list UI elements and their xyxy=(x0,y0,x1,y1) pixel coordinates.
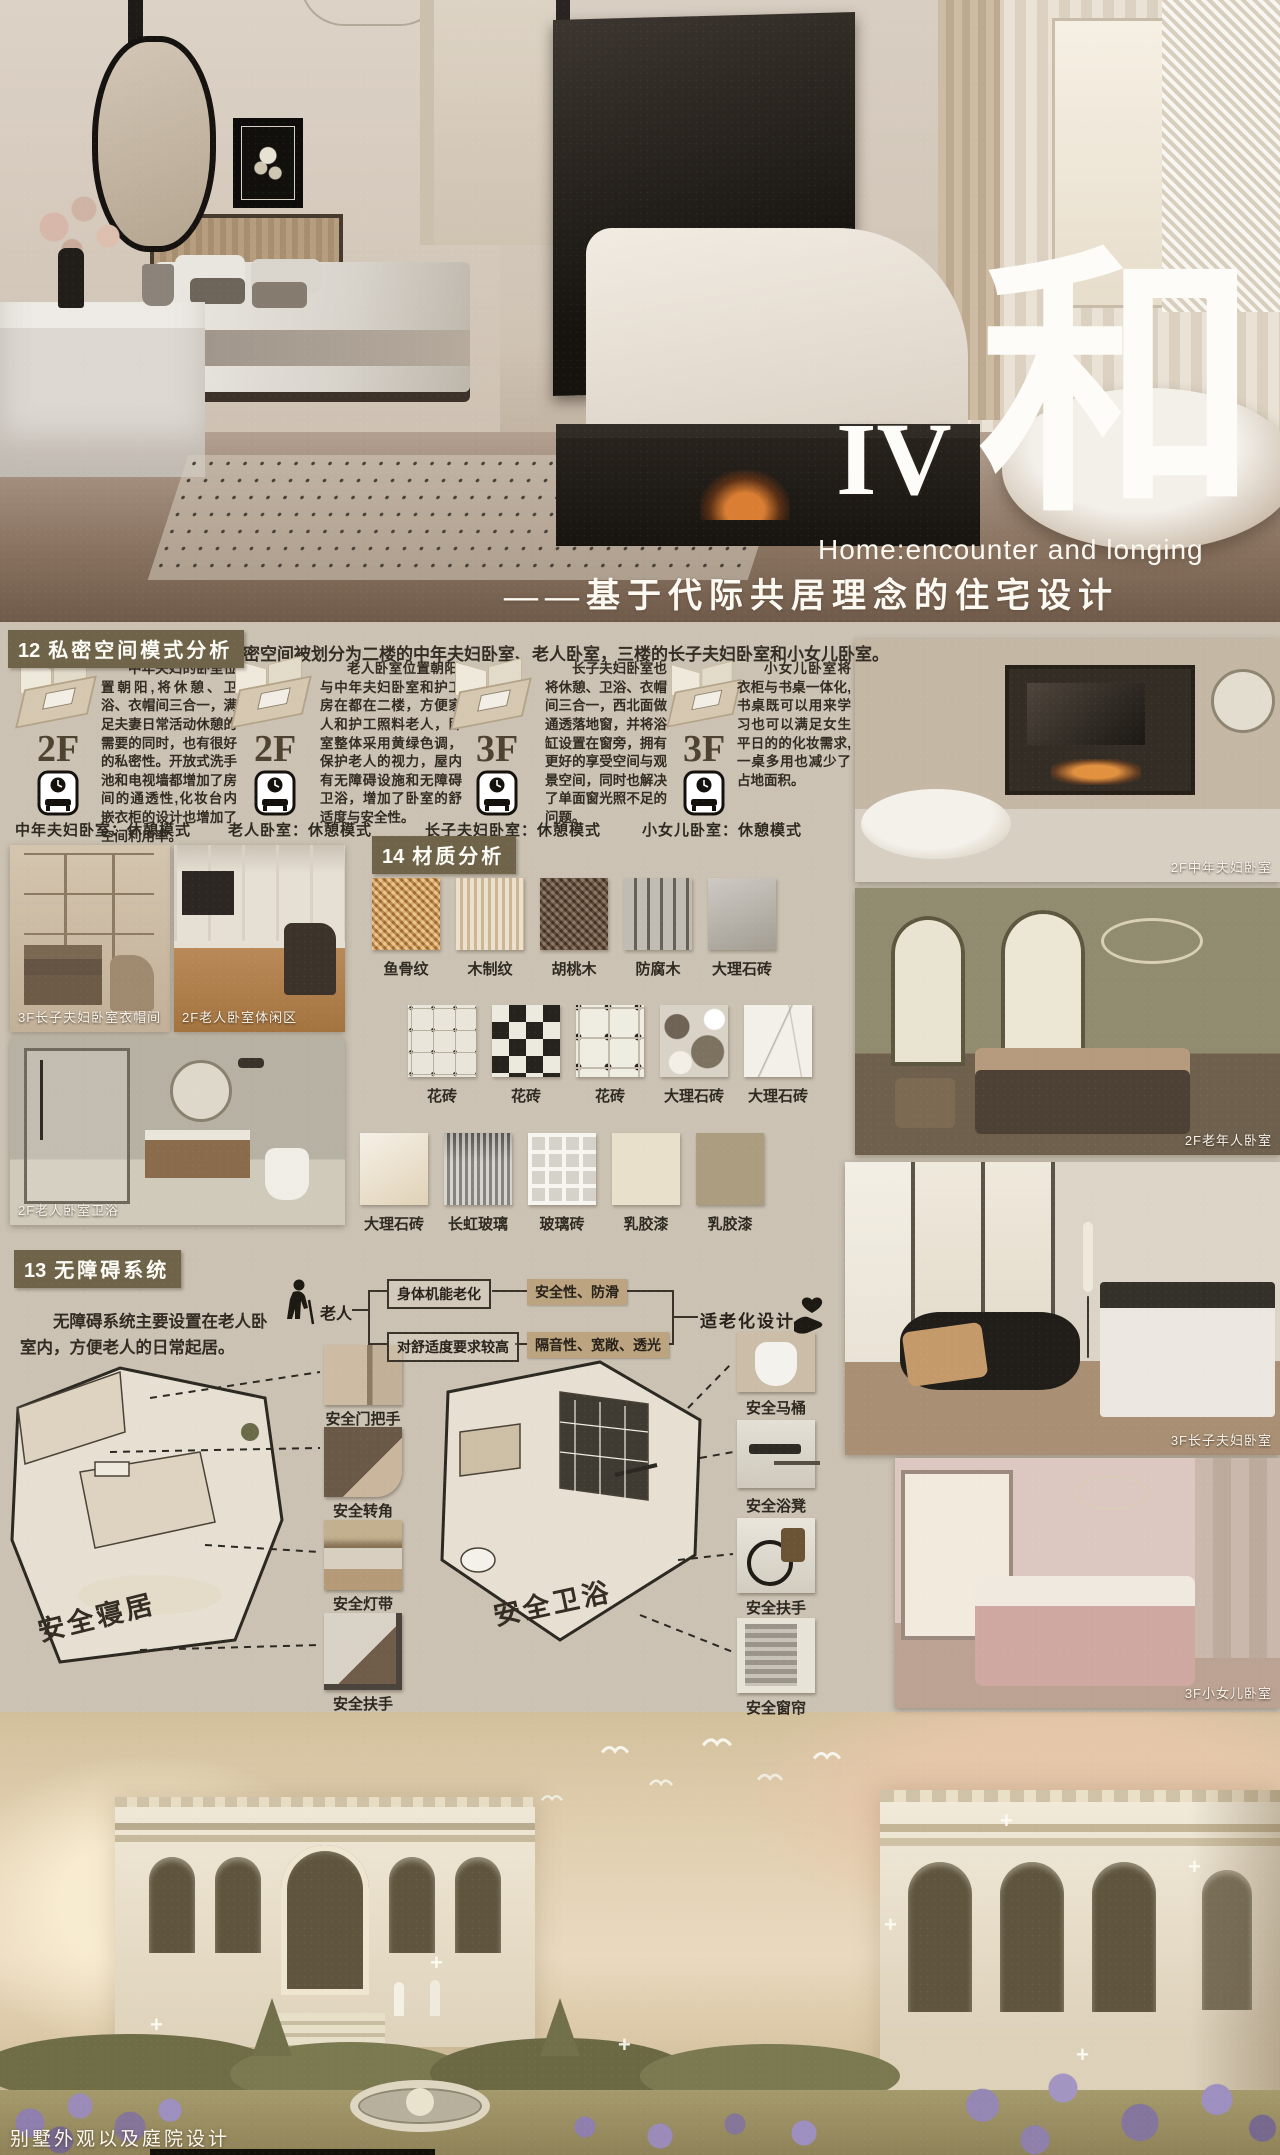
hero-photo: IV 和 Home:encounter and longing ——基于代际共居… xyxy=(0,0,1280,622)
material-row-3: 大理石砖 长虹玻璃 玻璃砖 乳胶漆 乳胶漆 xyxy=(360,1133,764,1234)
parapet xyxy=(115,1797,535,1807)
material-label: 花砖 xyxy=(492,1085,560,1106)
thumb-shower-seat xyxy=(737,1420,815,1488)
counter-pot xyxy=(142,264,174,306)
section13-title: 无障碍系统 xyxy=(54,1260,169,1282)
material-label: 大理石砖 xyxy=(708,958,776,979)
bedroom-mode-column: 2F 中年夫妇的卧室位置朝阳,将休憩、卫浴、衣帽间三合一，满足夫妻日常活动休憩的… xyxy=(15,658,237,820)
material-swatch-herringbone xyxy=(372,878,440,950)
white-figure xyxy=(430,1980,440,2016)
material-label: 防腐木 xyxy=(624,958,692,979)
column-text: 小女儿卧室将衣柜与书桌一体化,书桌既可以用来学习也可以满足女生平日的的化妆需求,… xyxy=(737,660,851,790)
section12-title: 私密空间模式分析 xyxy=(48,640,232,662)
bird-icon xyxy=(812,1748,842,1762)
floorplan-icon xyxy=(454,660,530,728)
mode-label: 小女儿卧室：休憩模式 xyxy=(642,819,802,840)
column-text: 长子夫妇卧室也将休憩、卫浴、衣帽间三合一，西北面做通透落地窗，并将浴缸设置在窗旁… xyxy=(545,660,667,828)
topiary-cone xyxy=(540,1998,580,2056)
clock-bed-icon xyxy=(683,770,725,816)
chair-back xyxy=(781,1528,805,1562)
material-label: 大理石砖 xyxy=(660,1085,728,1106)
thumb-bed-rail xyxy=(324,1613,402,1690)
material-swatch-tile-dots xyxy=(408,1005,476,1077)
left-villa xyxy=(115,1797,535,2047)
arched-window xyxy=(1001,910,1085,1070)
material-row-1: 鱼骨纹 木制纹 胡桃木 防腐木 大理石砖 xyxy=(372,878,776,979)
tv-screen xyxy=(1027,683,1145,745)
material-swatch-glass-brick xyxy=(528,1133,596,1205)
tub-white xyxy=(861,789,1011,859)
material-swatch-cream-marble xyxy=(360,1133,428,1205)
floorplan-icon xyxy=(19,658,95,726)
material-swatch-walnut xyxy=(540,878,608,950)
bed-pink xyxy=(975,1576,1195,1686)
material-label: 乳胶漆 xyxy=(612,1213,680,1234)
mode-label: 中年夫妇卧室：休憩模式 xyxy=(15,819,191,840)
material-label: 木制纹 xyxy=(456,958,524,979)
thumb-bed-lightstrip xyxy=(324,1520,402,1590)
material-label: 大理石砖 xyxy=(360,1213,428,1234)
photo-caption: 3F小女儿卧室 xyxy=(1185,1683,1272,1702)
seat-shape xyxy=(749,1444,801,1454)
design-poster: IV 和 Home:encounter and longing ——基于代际共居… xyxy=(0,0,1280,2155)
cornice xyxy=(115,1823,535,1830)
safety-item-label: 安全转角 xyxy=(303,1500,423,1521)
bird-icon xyxy=(600,1742,630,1756)
material-swatch-cream-paint xyxy=(612,1133,680,1205)
topiary-cone xyxy=(252,1998,292,2056)
flow-branch1: 身体机能老化 xyxy=(387,1279,491,1309)
art-flower xyxy=(250,138,286,188)
material-label: 胡桃木 xyxy=(540,958,608,979)
elder-mode-column: 2F 老人卧室位置朝阳,与中年夫妇卧室和护工房在都在二楼，方便家人和护工照料老人… xyxy=(228,658,464,820)
photo-elder-lounge: 2F老人卧室体闲区 xyxy=(174,845,345,1032)
column-text: 老人卧室位置朝阳,与中年夫妇卧室和护工房在都在二楼，方便家人和护工照料老人，卧室… xyxy=(320,660,462,828)
pillow-dark xyxy=(190,278,245,304)
section13-header: 13无障碍系统 xyxy=(14,1250,181,1288)
material-label: 花砖 xyxy=(408,1085,476,1106)
floorplan-icon xyxy=(234,658,310,726)
lavender-right xyxy=(930,2042,1280,2155)
material-label: 鱼骨纹 xyxy=(372,958,440,979)
photo-caption: 2F老人卧室卫浴 xyxy=(18,1200,119,1219)
section12-number: 12 xyxy=(18,640,40,662)
flow-outcome: 适老化设计 xyxy=(700,1307,795,1332)
bird-icon xyxy=(700,1734,734,1749)
material-swatch-woodgrain xyxy=(456,878,524,950)
material-swatch-white-marble xyxy=(744,1005,812,1077)
title-numeral: IV xyxy=(836,408,952,512)
bed-dark xyxy=(975,1048,1190,1134)
material-label: 大理石砖 xyxy=(744,1085,812,1106)
section13-number: 13 xyxy=(24,1260,46,1282)
clock-bed-icon xyxy=(37,770,79,816)
photo-caption: 2F老人卧室体闲区 xyxy=(182,1007,297,1026)
photo-daughter-bedroom-3f: 3F小女儿卧室 xyxy=(895,1458,1280,1708)
wall-sconce xyxy=(238,1058,264,1068)
hero-mid-window xyxy=(420,0,570,245)
photo-elder-bedroom-2f: 2F老年人卧室 xyxy=(855,888,1280,1155)
wardrobe-wall xyxy=(1195,1458,1280,1658)
toilet-shape xyxy=(265,1148,309,1200)
safety-item-label: 安全灯带 xyxy=(303,1593,423,1614)
photo-elder-bathroom: 2F老人卧室卫浴 xyxy=(10,1038,345,1225)
photo-caption: 3F长子夫妇卧室衣帽间 xyxy=(18,1007,161,1026)
section13-intro: 无障碍系统主要设置在老人卧室内，方便老人的日常起居。 xyxy=(20,1310,275,1361)
round-mirror xyxy=(1211,669,1275,733)
tv-rect xyxy=(182,871,234,915)
toilet-shape xyxy=(755,1342,797,1386)
material-row-2: 花砖 花砖 花砖 大理石砖 大理石砖 xyxy=(408,1005,812,1106)
mode-label: 老人卧室：休憩模式 xyxy=(228,819,372,840)
material-label: 玻璃砖 xyxy=(528,1213,596,1234)
section14-number: 14 xyxy=(382,846,404,868)
bird-icon xyxy=(540,1792,564,1803)
elderly-person-icon xyxy=(283,1278,319,1330)
material-swatch-marble xyxy=(708,878,776,950)
flow-branch2: 对舒适度要求较高 xyxy=(387,1332,519,1362)
photo-wardrobe: 3F长子夫妇卧室衣帽间 xyxy=(10,845,170,1032)
floor-tag: 2F xyxy=(254,730,296,768)
material-label: 乳胶漆 xyxy=(696,1213,764,1234)
clock-bed-icon xyxy=(254,770,296,816)
bird-icon xyxy=(756,1770,784,1783)
chair-silhouette xyxy=(110,955,154,1011)
section12-header: 12私密空间模式分析 xyxy=(8,630,244,668)
shower-fixture xyxy=(40,1060,43,1140)
safety-item-label: 安全扶手 xyxy=(716,1597,836,1618)
material-swatch-reeded-glass xyxy=(444,1133,512,1205)
safety-item-label: 安全窗帘 xyxy=(716,1697,836,1718)
lavender-mid xyxy=(540,2097,840,2155)
fountain-center xyxy=(406,2088,434,2116)
garden-caption: 别墅外观以及庭院设计 xyxy=(10,2124,230,2151)
material-swatch-tile-grid xyxy=(576,1005,644,1077)
material-label: 长虹玻璃 xyxy=(444,1213,512,1234)
nightstand-counter xyxy=(0,302,205,477)
safety-item-label: 安全浴凳 xyxy=(716,1495,836,1516)
bottom-black-bar xyxy=(150,2149,435,2155)
bench-chair xyxy=(895,1078,955,1128)
floor-tag: 3F xyxy=(683,730,725,768)
material-swatch-veined-marble xyxy=(660,1005,728,1077)
daughter-mode-column: 3F 小女儿卧室将衣柜与书桌一体化,书桌既可以用来学习也可以满足女生平日的的化妆… xyxy=(665,658,855,820)
material-swatch-treated-wood xyxy=(624,878,692,950)
photo-son-bedroom-3f: 3F长子夫妇卧室 xyxy=(845,1162,1280,1455)
material-swatch-tile-stars xyxy=(492,1005,560,1077)
chandelier-small xyxy=(1075,1476,1149,1510)
wood-vanity xyxy=(145,1130,250,1178)
thumb-safe-blinds xyxy=(737,1618,815,1693)
white-figure xyxy=(394,1982,404,2016)
wardrobe-drawers xyxy=(24,945,102,1005)
villa-garden-scene: + + + + + + + 别墅外观以及庭院设计 xyxy=(0,1712,1280,2155)
safety-item-label: 安全马桶 xyxy=(716,1397,836,1418)
section14-header: 14材质分析 xyxy=(372,836,516,874)
clock-bed-icon xyxy=(476,770,518,816)
title-big-character: 和 xyxy=(978,248,1260,530)
bird-icon xyxy=(648,1776,674,1788)
photo-caption: 2F中年夫妇卧室 xyxy=(1171,857,1272,876)
round-mirror xyxy=(170,1060,232,1122)
bed-white xyxy=(1100,1282,1275,1417)
ring-chandelier xyxy=(1101,918,1203,964)
title-chinese: ——基于代际共居理念的住宅设计 xyxy=(504,568,1280,617)
fireplace-flame xyxy=(700,470,790,520)
heart-hand-icon xyxy=(790,1296,828,1336)
thumb-wheelchair-rail xyxy=(737,1518,815,1593)
material-swatch-khaki-paint xyxy=(696,1133,764,1205)
vase-bottle xyxy=(58,248,84,308)
thumb-rounded-corner xyxy=(324,1427,402,1497)
material-label: 花砖 xyxy=(576,1085,644,1106)
floor-tag: 2F xyxy=(37,730,79,768)
floorplan-icon xyxy=(670,663,740,726)
fireplace-glow xyxy=(1051,759,1141,785)
title-english: Home:encounter and longing xyxy=(818,534,1278,566)
safety-item-label: 安全扶手 xyxy=(303,1693,423,1714)
safety-item-label: 安全门把手 xyxy=(303,1408,423,1429)
flow-actor: 老人 xyxy=(320,1300,352,1324)
photo-caption: 2F老年人卧室 xyxy=(1185,1130,1272,1149)
eldest-son-mode-column: 3F 长子夫妇卧室也将休憩、卫浴、衣帽间三合一，西北面做通透落地窗，并将浴缸设置… xyxy=(450,658,680,820)
blinds-shape xyxy=(745,1624,797,1686)
photo-caption: 3F长子夫妇卧室 xyxy=(1171,1430,1272,1449)
section14-title: 材质分析 xyxy=(412,846,504,868)
flow-branch2-result: 隔音性、宽敞、透光 xyxy=(527,1332,669,1358)
armchair xyxy=(284,923,336,995)
floor-lamp xyxy=(1083,1222,1093,1292)
floor-tag: 3F xyxy=(476,730,518,768)
thumb-safe-toilet xyxy=(737,1332,815,1392)
photo-master-bedroom-2f: 2F中年夫妇卧室 xyxy=(855,639,1280,882)
arched-window xyxy=(891,916,965,1066)
tan-throw xyxy=(902,1322,989,1388)
flow-branch1-result: 安全性、防滑 xyxy=(527,1279,627,1305)
